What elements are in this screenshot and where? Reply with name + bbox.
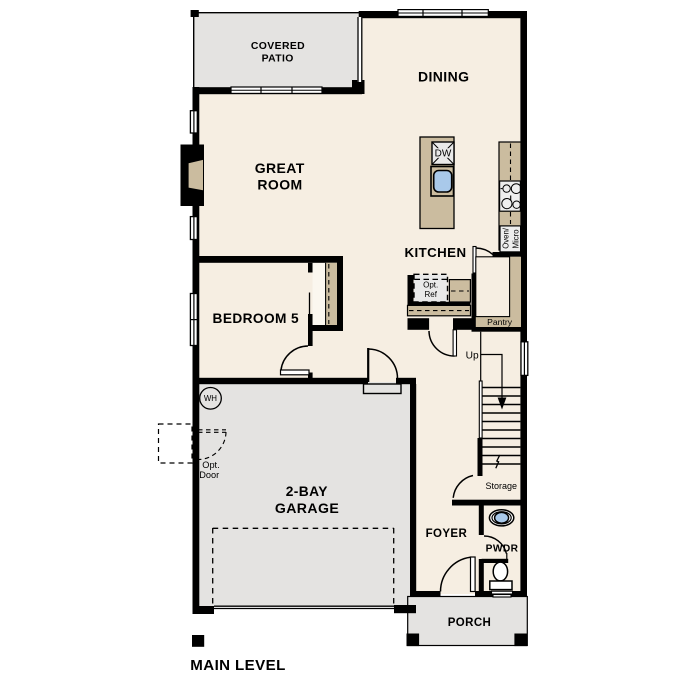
svg-text:KITCHEN: KITCHEN (405, 245, 467, 260)
svg-text:Storage: Storage (486, 481, 518, 491)
svg-text:Micro: Micro (511, 229, 520, 249)
svg-text:Pantry: Pantry (487, 317, 513, 327)
svg-text:Oven/: Oven/ (501, 227, 510, 249)
svg-text:BEDROOM 5: BEDROOM 5 (213, 311, 300, 326)
svg-text:MAIN LEVEL: MAIN LEVEL (190, 657, 285, 674)
svg-text:GREAT: GREAT (255, 160, 305, 176)
svg-text:2-BAY: 2-BAY (286, 484, 328, 499)
svg-text:WH: WH (204, 394, 217, 403)
svg-text:Ref: Ref (424, 290, 437, 299)
svg-text:ROOM: ROOM (257, 177, 302, 193)
svg-text:PWDR: PWDR (486, 544, 519, 555)
svg-text:Door: Door (199, 470, 219, 480)
svg-text:GARAGE: GARAGE (275, 500, 339, 516)
svg-text:Up: Up (466, 350, 479, 361)
svg-text:PORCH: PORCH (448, 617, 492, 629)
svg-text:DW: DW (435, 148, 452, 159)
svg-text:PATIO: PATIO (262, 53, 294, 64)
svg-text:COVERED: COVERED (251, 41, 305, 52)
svg-text:Opt.: Opt. (423, 280, 438, 289)
svg-text:FOYER: FOYER (426, 528, 468, 540)
svg-text:Opt.: Opt. (202, 460, 219, 470)
svg-text:DINING: DINING (418, 68, 469, 84)
